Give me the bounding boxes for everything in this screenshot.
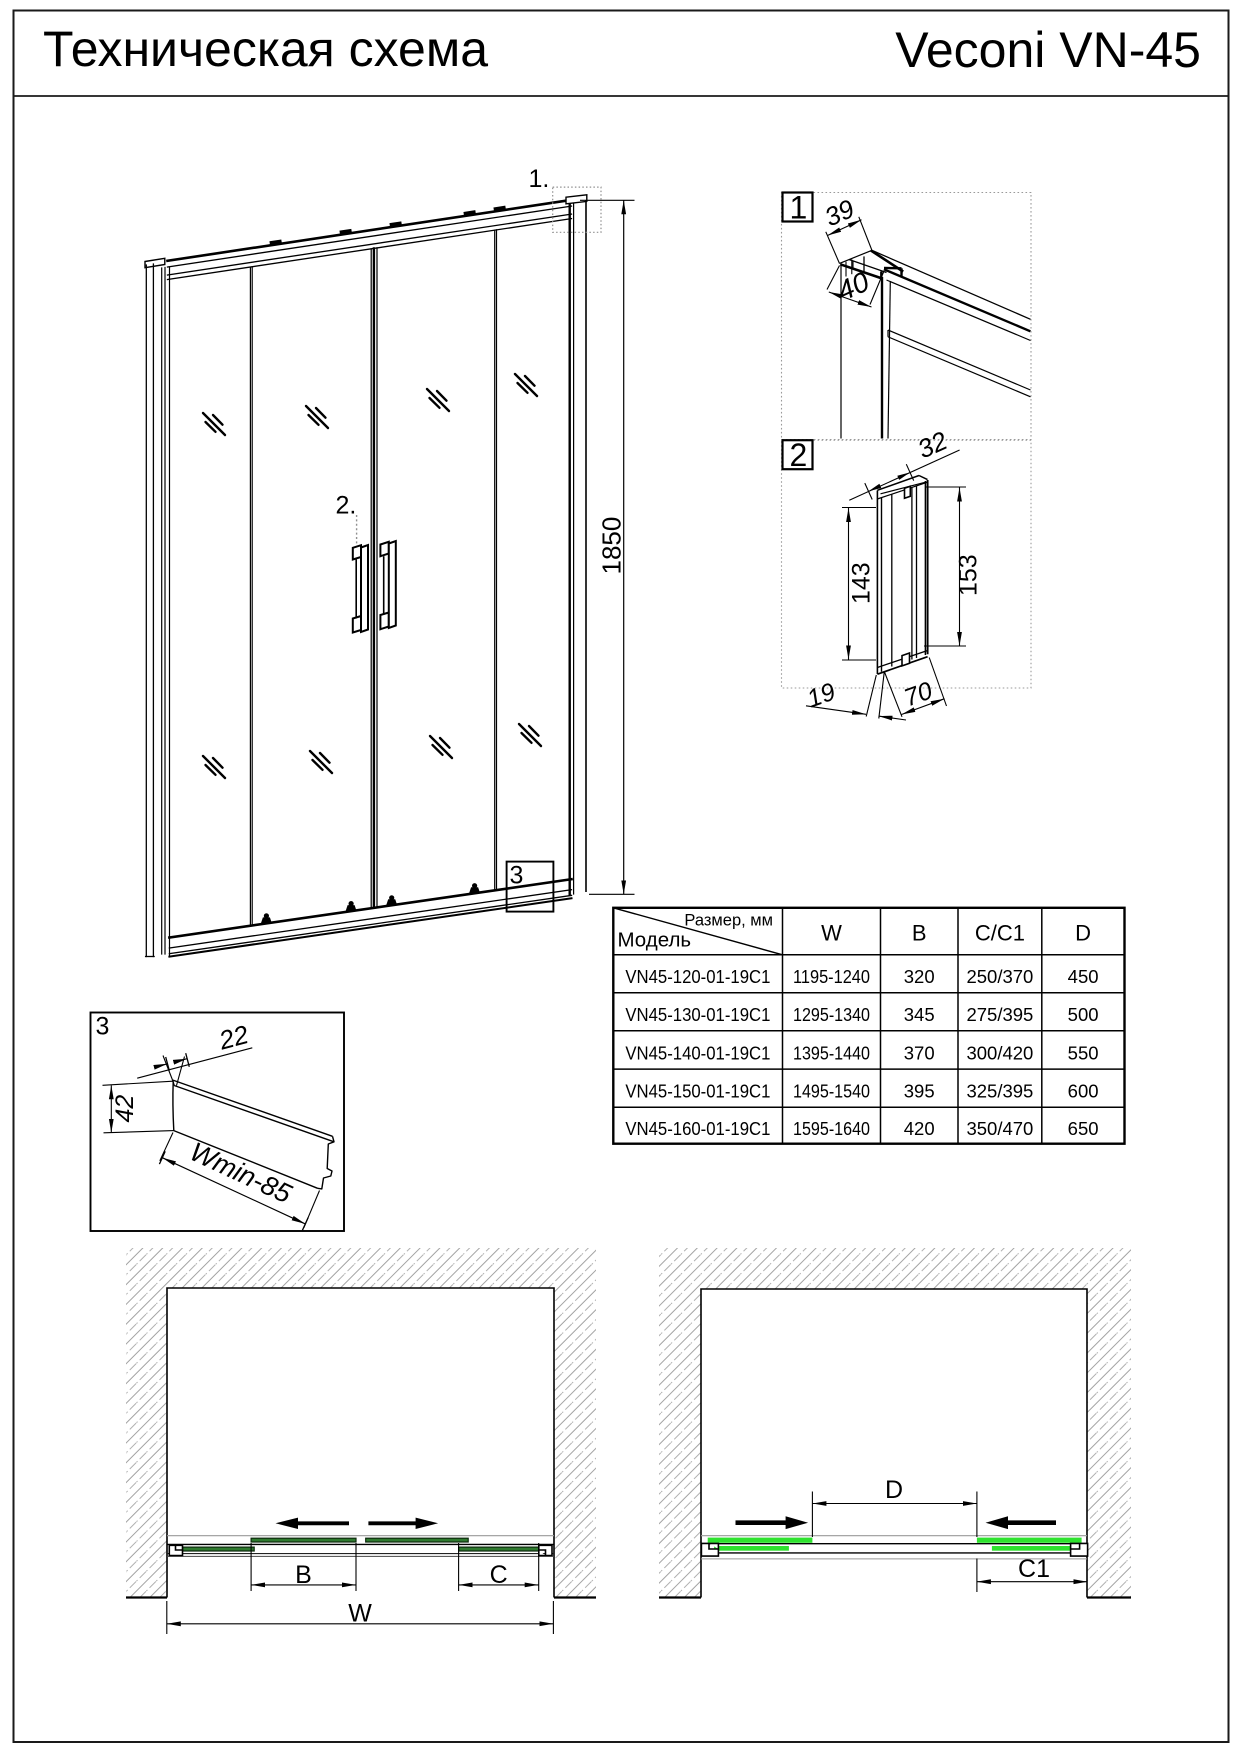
svg-text:W: W [821, 921, 842, 946]
svg-text:320: 320 [904, 966, 935, 987]
svg-text:2.: 2. [336, 492, 357, 520]
svg-text:C1: C1 [1018, 1555, 1050, 1583]
svg-text:C/C1: C/C1 [975, 921, 1025, 946]
svg-text:500: 500 [1068, 1004, 1099, 1025]
svg-text:Модель: Модель [618, 929, 692, 952]
svg-text:3: 3 [96, 1013, 110, 1041]
svg-text:B: B [912, 921, 927, 946]
svg-text:Размер, мм: Размер, мм [684, 912, 773, 930]
svg-text:Veconi VN-45: Veconi VN-45 [895, 22, 1201, 78]
svg-text:VN45-130-01-19C1: VN45-130-01-19C1 [625, 1004, 770, 1025]
svg-text:1: 1 [790, 190, 808, 226]
svg-text:1295-1340: 1295-1340 [793, 1004, 870, 1025]
svg-text:325/395: 325/395 [966, 1081, 1033, 1102]
svg-text:345: 345 [904, 1004, 935, 1025]
svg-text:350/470: 350/470 [966, 1118, 1033, 1139]
svg-text:VN45-140-01-19C1: VN45-140-01-19C1 [625, 1042, 770, 1063]
svg-text:1195-1240: 1195-1240 [793, 966, 870, 987]
svg-text:C: C [490, 1561, 508, 1589]
svg-text:W: W [348, 1600, 372, 1628]
svg-text:VN45-160-01-19C1: VN45-160-01-19C1 [625, 1118, 770, 1139]
svg-text:D: D [885, 1476, 903, 1504]
svg-text:450: 450 [1068, 966, 1099, 987]
svg-text:250/370: 250/370 [966, 966, 1033, 987]
svg-text:1850: 1850 [597, 517, 627, 575]
svg-text:1495-1540: 1495-1540 [793, 1081, 870, 1102]
svg-text:153: 153 [955, 554, 983, 596]
svg-text:600: 600 [1068, 1081, 1099, 1102]
svg-text:1595-1640: 1595-1640 [793, 1118, 870, 1139]
svg-text:3: 3 [510, 862, 524, 890]
svg-text:370: 370 [904, 1042, 935, 1063]
svg-text:550: 550 [1068, 1042, 1099, 1063]
svg-text:VN45-150-01-19C1: VN45-150-01-19C1 [625, 1081, 770, 1102]
svg-text:2: 2 [790, 437, 808, 473]
svg-text:B: B [295, 1561, 312, 1589]
svg-text:420: 420 [904, 1118, 935, 1139]
svg-text:Техническая схема: Техническая схема [43, 21, 488, 77]
svg-text:1.: 1. [529, 165, 550, 193]
svg-text:1395-1440: 1395-1440 [793, 1042, 870, 1063]
svg-text:650: 650 [1068, 1118, 1099, 1139]
svg-text:300/420: 300/420 [966, 1042, 1033, 1063]
svg-text:275/395: 275/395 [966, 1004, 1033, 1025]
svg-text:VN45-120-01-19C1: VN45-120-01-19C1 [625, 966, 770, 987]
svg-text:D: D [1075, 921, 1091, 946]
svg-text:395: 395 [904, 1081, 935, 1102]
svg-text:143: 143 [848, 562, 876, 604]
svg-text:42: 42 [111, 1095, 139, 1123]
